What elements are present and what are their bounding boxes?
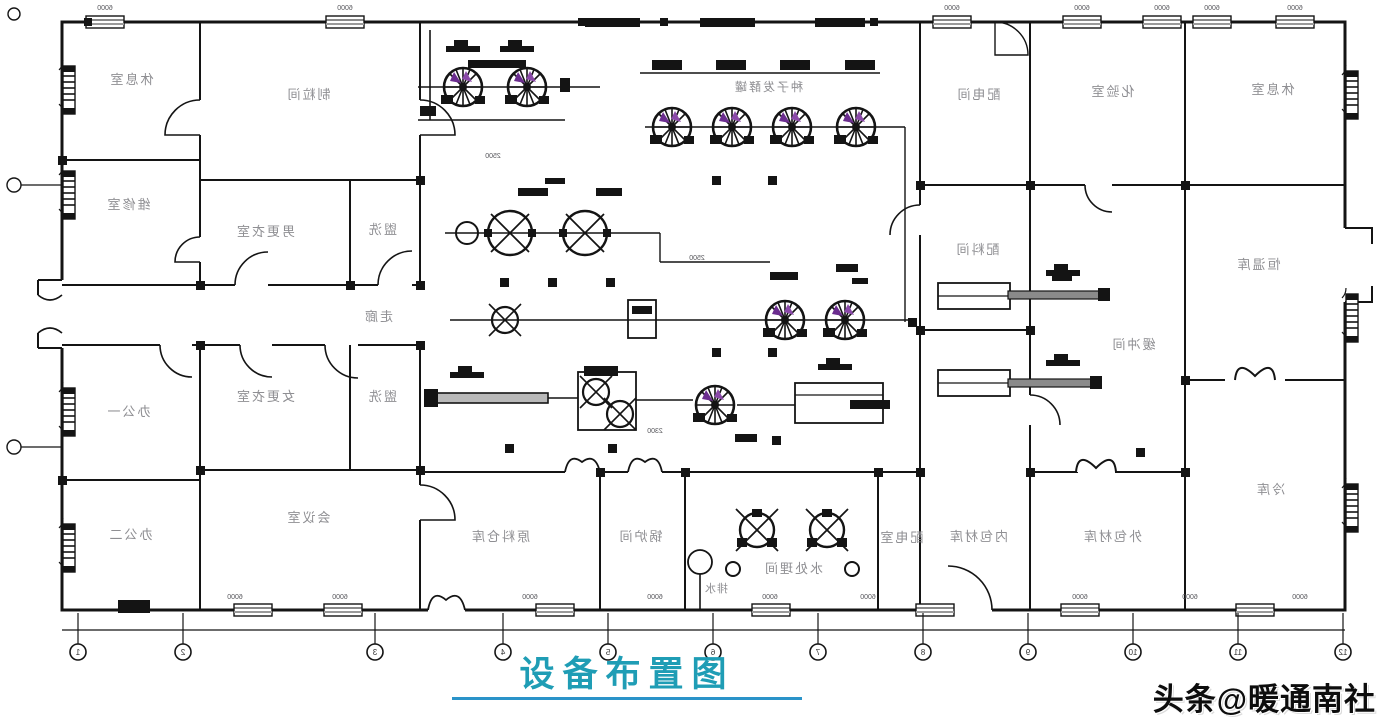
outer-walls bbox=[38, 22, 1372, 610]
dim-text: 6000 bbox=[522, 594, 538, 601]
dim-text: 6000 bbox=[944, 5, 960, 12]
axis-number: 7 bbox=[815, 648, 820, 657]
room-label-repair-room: 维修室 bbox=[105, 197, 150, 212]
process-row bbox=[450, 264, 912, 339]
room-label-outer-pack-material-store: 外包材库 bbox=[1082, 529, 1142, 544]
room-label-raw-material-warehouse: 原料仓库 bbox=[470, 529, 530, 544]
tank-icon bbox=[823, 301, 867, 339]
dim-text: 6000 bbox=[337, 5, 353, 12]
room-labels: 休息室 维修室 办公一 办公二 制粒间 男更衣室 盥洗 女更衣室 盥洗 走廊 会… bbox=[105, 72, 1294, 595]
equip-dim-text: 2300 bbox=[647, 428, 663, 435]
drawing-title: 设备布置图 bbox=[452, 656, 802, 700]
tank-icon bbox=[763, 301, 807, 339]
radiators bbox=[59, 60, 1358, 572]
room-label-power-dist-bay: 配电间 bbox=[955, 87, 1000, 102]
room-label-water-treatment-room: 水处理间 bbox=[763, 561, 823, 576]
pump-icon bbox=[604, 398, 636, 430]
room-label-rest-room-left: 休息室 bbox=[108, 72, 153, 87]
water-pump-icon bbox=[736, 509, 778, 551]
axis-number: 11 bbox=[1233, 648, 1242, 657]
tank-icon bbox=[441, 68, 485, 106]
tank-icon bbox=[693, 386, 737, 424]
room-label-corridor: 走廊 bbox=[363, 309, 393, 324]
room-label-female-locker-room: 女更衣室 bbox=[235, 389, 295, 404]
room-label-boiler-room: 锅炉间 bbox=[617, 529, 662, 544]
left-axis-markers bbox=[7, 8, 62, 454]
room-label-cold-store: 冷库 bbox=[1255, 482, 1285, 497]
room-label-office-1: 办公一 bbox=[105, 404, 150, 419]
dim-text: 6000 bbox=[647, 594, 663, 601]
axis-number: 9 bbox=[1025, 648, 1030, 657]
mixer-icon bbox=[484, 211, 536, 255]
room-label-washroom-1: 盥洗 bbox=[367, 222, 397, 237]
axis-number: 2 bbox=[180, 648, 185, 657]
mixer-icon bbox=[559, 211, 611, 255]
equipment-row-label: 种子发酵罐 bbox=[733, 79, 803, 94]
mixer-row bbox=[445, 178, 770, 262]
room-label-washroom-2: 盥洗 bbox=[367, 389, 397, 404]
room-label-granulation-room: 制粒间 bbox=[285, 87, 330, 102]
columns bbox=[58, 18, 1190, 485]
dim-text: 6000 bbox=[1072, 594, 1088, 601]
tank-icon bbox=[505, 68, 549, 106]
room-label-rest-room-right: 休息室 bbox=[1249, 82, 1294, 97]
water-pump-icon bbox=[806, 509, 848, 551]
room-label-office-2: 办公二 bbox=[107, 527, 152, 542]
drain-label: 排水 bbox=[704, 581, 728, 595]
room-label-inner-pack-material-store: 内包材库 bbox=[948, 529, 1008, 544]
room-label-power-dist-room: 配电室 bbox=[878, 530, 923, 545]
dim-text: 6000 bbox=[1074, 5, 1090, 12]
room-label-const-temp-store: 恒温库 bbox=[1235, 257, 1280, 272]
tank-icon bbox=[710, 108, 754, 146]
floor-plan-page: 1 2 3 4 5 6 7 8 9 10 11 12 6000 6000 600… bbox=[0, 0, 1384, 720]
floor-plan-svg: 1 2 3 4 5 6 7 8 9 10 11 12 6000 6000 600… bbox=[0, 0, 1384, 720]
room-label-batching-room: 配料间 bbox=[954, 242, 999, 257]
tank-icon bbox=[650, 108, 694, 146]
tank-icon bbox=[834, 108, 878, 146]
equip-dim-text: 2500 bbox=[689, 255, 705, 262]
fermentor-pair bbox=[418, 30, 600, 120]
dim-text: 6000 bbox=[1154, 5, 1170, 12]
dim-text: 6000 bbox=[1292, 594, 1308, 601]
room-label-male-locker-room: 男更衣室 bbox=[235, 224, 295, 239]
room-label-meeting-room: 会议室 bbox=[285, 510, 330, 525]
axis-number: 3 bbox=[372, 648, 377, 657]
pump-icon bbox=[580, 376, 612, 408]
dim-text: 6000 bbox=[762, 594, 778, 601]
double-door-outer-pack bbox=[1076, 460, 1116, 472]
dim-text: 6000 bbox=[1287, 5, 1303, 12]
room-label-buffer-room: 缓冲间 bbox=[1110, 337, 1155, 352]
tank-icon bbox=[770, 108, 814, 146]
interior-walls bbox=[62, 22, 1345, 610]
dim-text: 6000 bbox=[97, 5, 113, 12]
room-label-laboratory: 化验室 bbox=[1089, 84, 1134, 99]
axis-number: 10 bbox=[1128, 648, 1137, 657]
axis-number: 8 bbox=[920, 648, 925, 657]
dim-text: 6000 bbox=[1204, 5, 1220, 12]
watermark-text: 头条@暖通南社 bbox=[1153, 674, 1376, 719]
dim-text: 6000 bbox=[1182, 594, 1198, 601]
dim-text: 6000 bbox=[227, 594, 243, 601]
axis-number: 12 bbox=[1338, 648, 1347, 657]
axis-grid bbox=[62, 613, 1345, 644]
windows bbox=[86, 16, 1314, 616]
dim-text: 6000 bbox=[860, 594, 876, 601]
dim-text: 6000 bbox=[332, 594, 348, 601]
equip-dim-text: 2500 bbox=[485, 153, 501, 160]
axis-number: 1 bbox=[75, 648, 80, 657]
double-door-cold-store bbox=[1235, 368, 1275, 380]
